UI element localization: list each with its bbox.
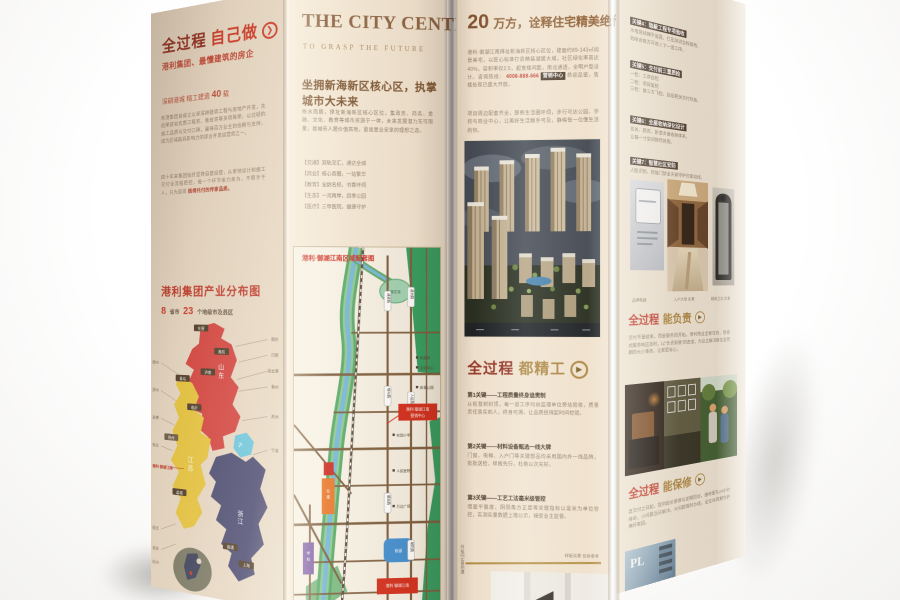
district-map: 港利·御湖江南区域配套图 樱花湖 映湖 在 建 学 校 通灌路 瀛洲路 郁州路 [293, 246, 441, 600]
svg-text:营销中心: 营销中心 [410, 413, 425, 418]
gold-divider [465, 562, 601, 564]
svg-text:瀛洲路: 瀛洲路 [410, 289, 415, 300]
panelA-map-title: 港利集团产业分布图 [161, 282, 261, 299]
svg-text:淮安: 淮安 [152, 545, 159, 551]
panelA-tagline-num: 40 [212, 89, 222, 101]
svg-text:滨州: 滨州 [152, 387, 159, 392]
svg-text:万达广场: 万达广场 [396, 504, 410, 509]
svg-text:宁波: 宁波 [271, 447, 279, 453]
svg-text:在: 在 [326, 488, 330, 493]
svg-text:港利·御湖江南: 港利·御湖江南 [406, 406, 430, 411]
svg-text:德州: 德州 [152, 359, 159, 364]
svg-text:徐州: 徐州 [168, 435, 175, 441]
aerial-rendering-photo [463, 138, 601, 338]
panel-project-quality: 20 万方，诠释住宅精美绝伦…… 港利·御湖江南择址新海新区核心区位，建面约89… [456, 0, 611, 600]
svg-text:通灌路: 通灌路 [387, 293, 392, 304]
photo-caption: 入户大堂 实景 [674, 297, 695, 303]
panelC-heading-accent: 都精工 [519, 361, 566, 378]
svg-text:日照: 日照 [271, 352, 279, 358]
svg-text:解放路: 解放路 [387, 495, 392, 506]
svg-text:实验小学: 实验小学 [396, 432, 410, 437]
list-item: 【教育】全龄名校，书香环伺 [302, 180, 366, 192]
svg-text:人民医院: 人民医院 [396, 468, 410, 473]
panelC-headline-num: 20 [467, 11, 489, 33]
province-label: 山 [218, 362, 224, 371]
svg-text:樱花湖: 樱花湖 [390, 289, 401, 294]
svg-text:文化中心: 文化中心 [420, 365, 434, 370]
panelC-paragraph-2: 项目周边配套齐全，醇熟生活圈环伺，步行可达公园、学校与商业中心，让美好生活触手可… [467, 108, 599, 135]
panelA-heading: 全过程 自己做 ❯ [162, 14, 278, 57]
province-label: 浙 [238, 509, 244, 518]
panelC-p1-badge: 营销中心 [541, 72, 565, 81]
svg-text:潍坊: 潍坊 [218, 349, 225, 354]
list-item: 【医疗】三甲医院，健康守护 [302, 202, 366, 214]
panelD-h1-main: 全过程 [628, 313, 659, 328]
panelA-tagline-pre: 深耕港城 精工建造 [162, 93, 210, 106]
svg-text:盐城: 盐城 [176, 489, 183, 495]
key-heading: 第2关键——材料设备甄选一线大牌 [467, 442, 599, 452]
svg-text:市政府: 市政府 [420, 355, 431, 360]
panelD-heading-1: 全过程 能负责 ▶ [628, 309, 704, 329]
panelC-section-heading: 全过程 都精工 ▶ [467, 357, 588, 379]
key-paragraph: 从桩基到封顶，每一道工序均由监理单位旁站验收，质量责任落实到人，终身可溯，让品质… [467, 401, 599, 419]
panelB-headline: 坐拥新海新区核心区，执掌城市大未来 [302, 76, 447, 111]
stat-cities-label: 个地级市及县区 [197, 310, 233, 316]
appliance-photo [630, 179, 664, 270]
svg-text:临沂: 临沂 [191, 405, 198, 411]
panel-service-warranty: 关键4：隐蔽工程专项验收 水电管线横平竖直，打压测试全程留档， 验收合格方可进入… [616, 0, 745, 594]
panelA-tagline-post: 载 [223, 91, 229, 99]
panelB-title: THE CITY CENTER [302, 10, 481, 37]
photo-caption: 品牌电器 [632, 297, 646, 303]
arrow-right-icon: ▶ [570, 361, 588, 379]
china-region-map: 山 东 江 苏 沪 浙 江 东营 潍坊 济南 青岛 临沂 徐州 盐城 南通 上海 [152, 322, 280, 600]
svg-text:东营: 东营 [198, 326, 205, 331]
svg-text:宿迁: 宿迁 [152, 525, 159, 531]
svg-text:建: 建 [326, 494, 330, 499]
stat-provinces-num: 8 [161, 306, 166, 317]
svg-text:体育公园: 体育公园 [420, 385, 434, 390]
panelA-heading-main: 全过程 [162, 31, 207, 56]
panelC-key-3: 第3关键——工艺工法毫米级管控 墙面平整度、阴阳角方正度等关键指标以毫米为单位管… [467, 494, 599, 523]
panelD-h2-accent: 能保修 [663, 475, 692, 494]
svg-text:杭州: 杭州 [152, 559, 159, 565]
district-map-title: 港利·御湖江南区域配套图 [302, 253, 375, 262]
key-heading: 第3关键——工艺工法毫米级管控 [467, 494, 599, 504]
panelB-subtitle: TO GRASP THE FUTURE [303, 42, 426, 53]
district-map-art: 港利·御湖江南区域配套图 樱花湖 映湖 在 建 学 校 通灌路 瀛洲路 郁州路 [294, 247, 440, 600]
stat-provinces-label: 省市 [170, 310, 180, 316]
lifestyle-photo-strip [625, 374, 737, 476]
svg-text:学: 学 [307, 550, 311, 555]
svg-text:泰州: 泰州 [271, 384, 279, 390]
svg-text:校: 校 [307, 556, 311, 561]
svg-text:港利·御湖江南: 港利·御湖江南 [152, 463, 173, 470]
stat-cities-num: 23 [183, 306, 193, 317]
panelD-paragraph-1: 交付不是结束，而是服务的开始。港利物业全程在线，管家式服务响应及时，以“负责到底… [628, 330, 730, 358]
list-item: 【生态】一河两岸，四季公园 [302, 191, 366, 203]
svg-text:苏州: 苏州 [271, 414, 279, 420]
panelD-bottom-photo: PL [625, 539, 675, 592]
brochure-photo: 全过程 自己做 ❯ 港利集团、最懂建筑的房企 深耕港城 精工建造 40 载 新港… [0, 0, 900, 600]
panelC-bottom-photo [491, 571, 611, 600]
panelC-heading-main: 全过程 [467, 360, 514, 377]
svg-text:人民路: 人民路 [410, 394, 415, 405]
panelC-key-2: 第2关键——材料设备甄选一线大牌 门窗、电梯、入户门等关键部品均采用国内外一线品… [467, 442, 599, 470]
panelC-p1-phone: 4008-888-666 [506, 73, 539, 80]
svg-text:港利·御湖江南: 港利·御湖江南 [386, 583, 410, 589]
key-paragraph: 门窗、电梯、入户门等关键部品均采用国内外一线品牌，批批送检，样板先行，杜绝以次充… [467, 452, 599, 470]
svg-text:淄博: 淄博 [152, 415, 159, 420]
panelA-tagline: 深耕港城 精工建造 40 载 [162, 88, 229, 107]
province-label: 江 [188, 456, 194, 465]
panelC-caption-right: 样板实景 仅供参考 [565, 553, 599, 560]
panelA-stats: 8 省市 23 个地级市及县区 [161, 302, 233, 319]
panelC-paragraph-1: 港利·御湖江南择址新海新区核心区位，建面约89-143㎡阔景美宅，以匠心标准打造… [467, 46, 599, 90]
panelD-group-3: 关键6：全屋收纳深化设计 玄关、厨房、卧室多维收纳体系， 让每一寸空间物尽其用。 [630, 108, 727, 154]
panelB-list: 【交通】双轨交汇，通达全城 【商业】核心商圈，一站繁华 【教育】全龄名校，书香环… [302, 158, 366, 213]
panel-company-profile: 全过程 自己做 ❯ 港利集团、最懂建筑的房企 深耕港城 精工建造 40 载 新港… [151, 0, 287, 600]
lobby-photo [667, 179, 708, 291]
svg-text:连云港: 连云港 [268, 368, 279, 374]
panelA-paragraph-1: 新港集团自成立以来深耕建筑工程与房地产开发，先后荣获省优质工程奖、鲁班奖等多项殊… [161, 103, 266, 146]
svg-text:烟台: 烟台 [271, 336, 279, 341]
list-item: 【交通】双轨交汇，通达全城 [302, 158, 366, 170]
panelC-caption-left: 样板间实景拍摄 [460, 545, 466, 574]
arrow-right-icon: ❯ [262, 21, 278, 40]
panelA-paragraph-2-highlight: 值得托付的传家品质。 [188, 185, 232, 194]
panelA-paragraph-2: 四十年来集团始终坚持自建自营，从拿地设计到施工交付全流程把控，每一个环节亲力亲为… [161, 166, 266, 197]
panelD-group-2: 关键5：交付前三重质检 一检：工序自检 二检：项目复检 三检：第三方飞检，层层把… [630, 53, 727, 111]
arrow-right-icon: ▶ [695, 311, 705, 323]
svg-text:枣庄: 枣庄 [152, 442, 159, 448]
photo-caption: 精装卫浴 实景 [711, 296, 730, 302]
svg-text:映湖: 映湖 [395, 548, 403, 553]
province-label: 江 [238, 518, 244, 526]
svg-text:青岛: 青岛 [179, 376, 186, 381]
list-item: 【商业】核心商圈，一站繁华 [302, 169, 366, 181]
panelC-key-1: 第1关键——工程质量终身追责制 从桩基到封顶，每一道工序均由监理单位旁站验收，质… [467, 391, 599, 419]
svg-text:朝阳路: 朝阳路 [410, 542, 415, 553]
svg-text:济南: 济南 [204, 369, 211, 374]
panelB-paragraph: 依水而居，择址新海新区核心区位，集政务、商务、金融、文化、教育等城市资源于一体，… [302, 108, 433, 135]
mirror-photo [712, 187, 734, 285]
arrow-right-icon: ▶ [695, 473, 705, 487]
panelA-heading-accent: 自己做 [210, 22, 258, 48]
key-paragraph: 墙面平整度、阴阳角方正度等关键指标以毫米为单位管控，实测实量数据上墙公示，接受业… [467, 503, 599, 522]
svg-text:郁州路: 郁州路 [387, 388, 392, 399]
key-heading: 第1关键——工程质量终身追责制 [467, 391, 599, 400]
panelD-h2-main: 全过程 [628, 482, 659, 502]
panel-city-center: THE CITY CENTER TO GRASP THE FUTURE 坐拥新海… [287, 0, 447, 600]
panelD-h1-accent: 能负责 [663, 312, 692, 326]
province-label: 东 [218, 370, 224, 380]
